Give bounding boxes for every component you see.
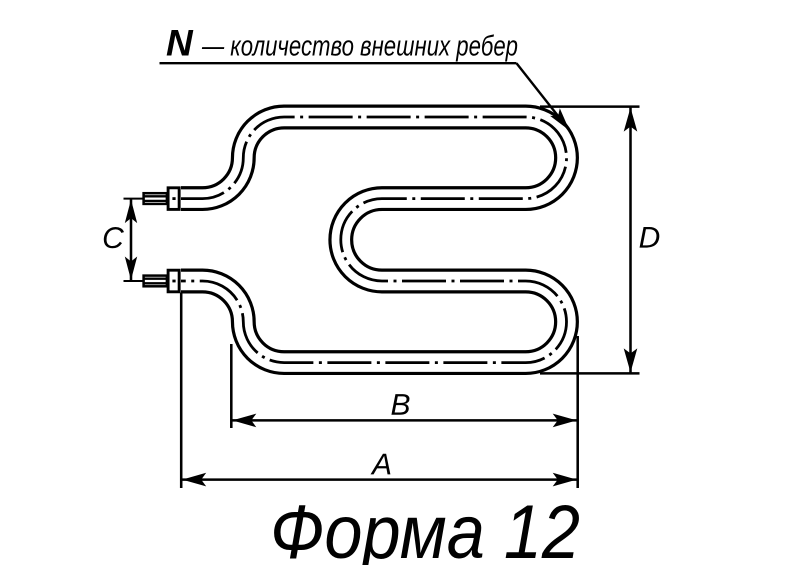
svg-text:N: N (166, 23, 194, 64)
svg-text:Форма 12: Форма 12 (270, 490, 580, 565)
svg-text:— количество внешних ребер: — количество внешних ребер (201, 31, 518, 63)
svg-text:A: A (370, 448, 392, 481)
svg-text:B: B (390, 389, 410, 422)
svg-text:C: C (102, 222, 124, 255)
svg-text:D: D (639, 222, 661, 255)
